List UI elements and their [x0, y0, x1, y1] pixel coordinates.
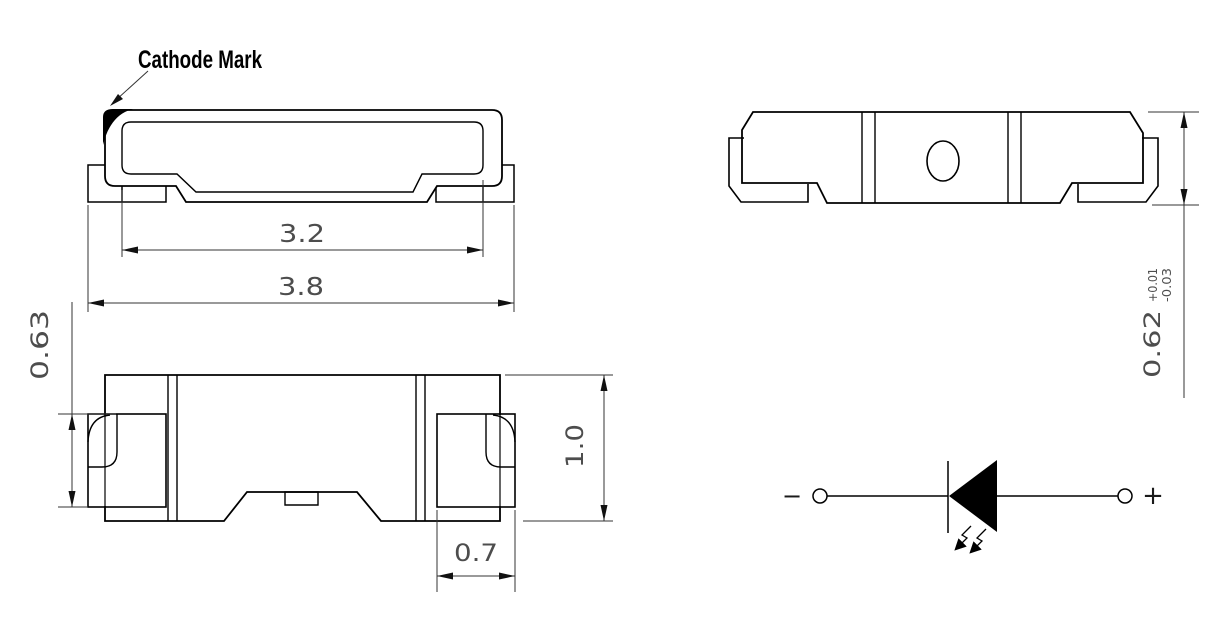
- side-view: 0.62 +0.01 -0.03: [729, 112, 1199, 398]
- dimension-arrowhead: [499, 573, 515, 580]
- top-view: Cathode Mark 3.2 3.8: [88, 46, 514, 312]
- front-view-center-pad: [285, 492, 318, 505]
- dimension-arrowhead: [467, 247, 483, 254]
- cathode-terminal-circle: [813, 489, 827, 503]
- dimension-arrowhead: [601, 375, 608, 391]
- dimension-label-0-62-group: 0.62 +0.01 -0.03: [1141, 268, 1174, 378]
- dimension-arrowhead: [1181, 112, 1188, 128]
- dimension-tolerance-lower: -0.03: [1160, 268, 1174, 302]
- front-view-body-outline: [105, 375, 500, 521]
- dimension-label-3-8: 3.8: [278, 272, 324, 301]
- dimension-arrowhead: [498, 300, 514, 307]
- dimension-side-height: 0.62 +0.01 -0.03: [1141, 112, 1199, 398]
- dimension-arrowhead: [69, 491, 76, 507]
- dimension-front-lead-height: 0.63: [26, 302, 116, 507]
- dimension-arrowhead: [88, 300, 104, 307]
- led-schematic: − +: [782, 460, 1164, 552]
- dimension-front-lead-width: 0.7: [437, 510, 515, 592]
- dimension-label-0-63: 0.63: [26, 310, 54, 380]
- dimension-arrowhead: [437, 573, 453, 580]
- light-emission-arrow: [971, 529, 986, 552]
- dimension-front-body-height: 1.0: [505, 375, 613, 521]
- anode-terminal-circle: [1118, 489, 1132, 503]
- diode-triangle: [949, 460, 997, 532]
- light-emission-arrow: [956, 526, 971, 549]
- dimension-tolerance-upper: +0.01: [1146, 268, 1160, 302]
- dimension-label-0-7: 0.7: [454, 539, 498, 567]
- dimension-arrowhead: [1181, 189, 1188, 205]
- dimension-label-3-2: 3.2: [279, 219, 325, 248]
- dimension-arrowhead: [69, 414, 76, 430]
- dimension-label-1-0: 1.0: [561, 424, 589, 468]
- cathode-mark-label: Cathode Mark: [138, 46, 262, 74]
- cathode-polarity-label: −: [782, 482, 802, 510]
- mechanical-drawing-sheet: Cathode Mark 3.2 3.8: [0, 0, 1217, 626]
- cathode-mark-leader-line: [116, 71, 148, 100]
- dimension-arrowhead: [122, 247, 138, 254]
- dimension-arrowhead: [601, 505, 608, 521]
- dimension-label-0-62: 0.62: [1141, 310, 1166, 378]
- drawing-canvas: Cathode Mark 3.2 3.8: [0, 0, 1217, 626]
- anode-polarity-label: +: [1142, 481, 1164, 511]
- side-view-body-outline: [742, 112, 1143, 203]
- front-view: 0.63 1.0 0.7: [26, 302, 613, 592]
